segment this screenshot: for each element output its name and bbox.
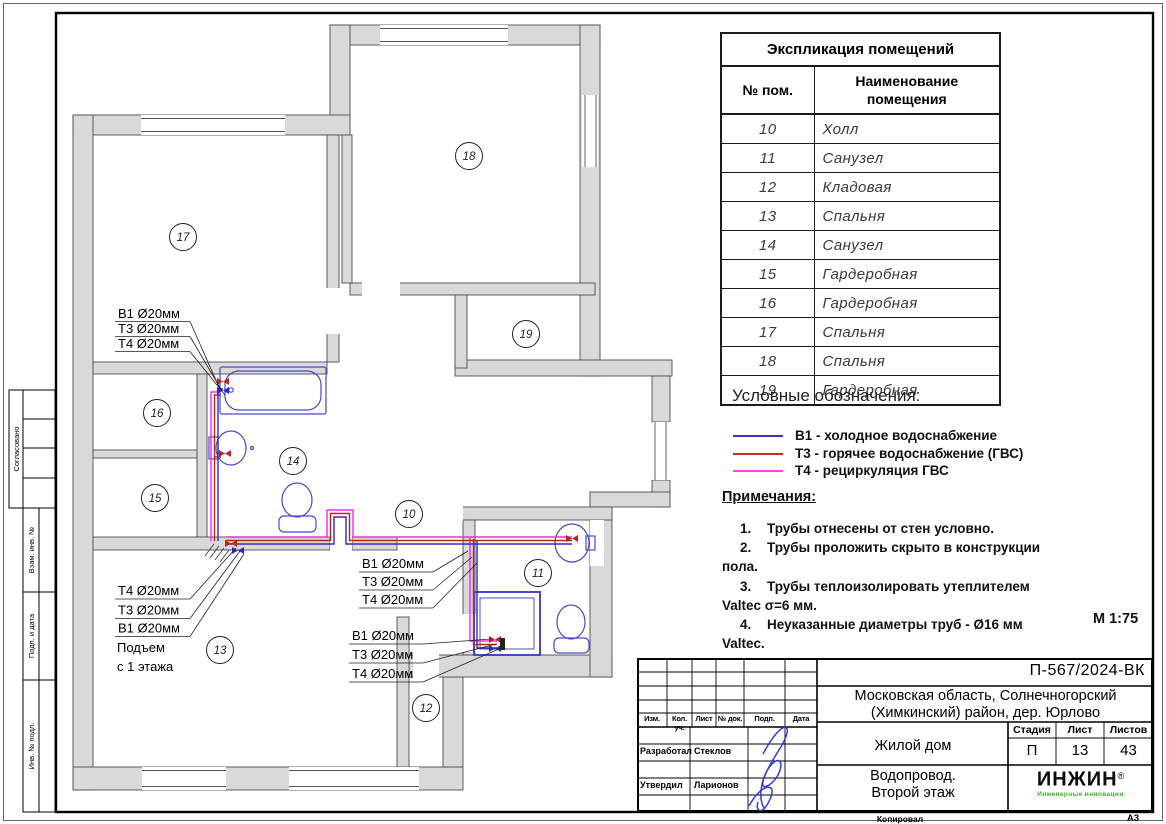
room-name-cell: Спальня (814, 347, 1000, 376)
pipe-label: В1 Ø20мм (118, 306, 180, 321)
note-number: 1. (740, 521, 767, 536)
room-number-cell: 16 (721, 289, 814, 318)
note-number: 4. (740, 617, 767, 632)
svg-text:18: 18 (463, 151, 476, 163)
svg-text:19: 19 (520, 329, 533, 341)
note-item: 4.Неуказанные диаметры труб - Ø16 мм (722, 617, 1052, 636)
svg-text:15: 15 (149, 493, 162, 505)
washbasin-room11 (555, 524, 595, 562)
room-circle: 19 (513, 321, 540, 348)
riser-note-line: Подъем (117, 640, 165, 655)
shower-room11 (474, 592, 540, 655)
svg-text:10: 10 (403, 509, 416, 521)
rooms-explication-table: Экспликация помещений № пом. Наименовани… (720, 32, 1001, 406)
room-circle: 16 (144, 400, 171, 427)
room-circle: 12 (413, 695, 440, 722)
table-row: 14Санузел (721, 231, 1000, 260)
table-row: 10Холл (721, 114, 1000, 144)
room-name-cell: Гардеробная (814, 289, 1000, 318)
legend-line-sample (733, 453, 783, 455)
room-number-cell: 15 (721, 260, 814, 289)
room-number-cell: 17 (721, 318, 814, 347)
table-row: 13Спальня (721, 202, 1000, 231)
format-label: А3 (1118, 813, 1148, 824)
floor-plan: В1 Ø20мм Т3 Ø20мм Т4 Ø20мм Т4 Ø20мм Т3 Ø… (57, 14, 717, 812)
logo-text: ИНЖИН (1037, 768, 1118, 790)
column-header-number: № пом. (721, 66, 814, 114)
legend-line-sample (733, 435, 783, 437)
column-header-name: Наименование помещения (814, 66, 1000, 114)
svg-text:14: 14 (287, 456, 300, 468)
room-number-cell: 10 (721, 114, 814, 144)
room-number-cell: 11 (721, 144, 814, 173)
pipe-label: Т4 Ø20мм (362, 592, 423, 607)
stage-value: П (1008, 742, 1056, 759)
room-name-cell: Кладовая (814, 173, 1000, 202)
address-line2: (Химкинский) район, дер. Юрлово (818, 705, 1153, 722)
note-number: 2. (740, 540, 767, 555)
notes-title: Примечания: (722, 489, 816, 505)
col-izm: Изм. (637, 714, 667, 723)
legend-label: Т4 - рециркуляция ГВС (795, 463, 949, 478)
pipe-label: Т3 Ø20мм (118, 321, 179, 336)
pipe-label: Т4 Ø20мм (352, 666, 413, 681)
sheet-title: Водопровод. Второй этаж (818, 768, 1008, 802)
sheets-value: 43 (1104, 742, 1153, 759)
col-podp: Подп. (744, 714, 785, 723)
note-text-continuation: пола. (722, 559, 1052, 578)
legend-label: В1 - холодное водоснабжение (795, 428, 997, 443)
object-name: Жилой дом (818, 738, 1008, 754)
room-name-cell: Санузел (814, 144, 1000, 173)
side-stamp-agreed-label: Согласовано (12, 426, 21, 471)
room-name-cell: Спальня (814, 318, 1000, 347)
side-stamp-inv-orig-label: Инв. № подл. (27, 723, 36, 770)
note-text: Трубы теплоизолировать утеплителем (767, 579, 1030, 594)
stage-label: Стадия (1008, 724, 1056, 736)
approved-label: Утвердил (640, 780, 683, 790)
pipe-label: Т3 Ø20мм (118, 603, 179, 618)
developed-label: Разработал (640, 746, 692, 756)
sheet-value: 13 (1056, 742, 1104, 759)
svg-text:11: 11 (532, 568, 544, 580)
note-item: 3.Трубы теплоизолировать утеплителем (722, 579, 1052, 598)
note-text-continuation: Valtec σ=6 мм. (722, 598, 1052, 617)
room-number-cell: 14 (721, 231, 814, 260)
note-text: Трубы отнесены от стен условно. (767, 521, 994, 536)
washbasin-room14 (209, 431, 254, 465)
table-row: 17Спальня (721, 318, 1000, 347)
note-item: 2.Трубы проложить скрыто в конструкции (722, 540, 1052, 559)
pipe-label: Т4 Ø20мм (118, 583, 179, 598)
room-name-cell: Спальня (814, 202, 1000, 231)
room-name-cell: Санузел (814, 231, 1000, 260)
room-circle: 17 (170, 224, 197, 251)
side-stamp-replace-inv-label: Взам. инв. № (27, 527, 36, 573)
note-text-continuation: Valtec. (722, 636, 1052, 655)
table-row: 18Спальня (721, 347, 1000, 376)
project-address: Московская область, Солнечногорский (Хим… (818, 688, 1153, 721)
svg-text:13: 13 (214, 645, 227, 657)
note-item: 1.Трубы отнесены от стен условно. (722, 521, 1052, 540)
legend-line-sample (733, 470, 783, 472)
pipe-label: Т3 Ø20мм (352, 647, 413, 662)
room-name-cell: Холл (814, 114, 1000, 144)
col-data: Дата (785, 714, 817, 723)
col-kol-uch: Кол. уч. (667, 714, 692, 732)
scale-note: М 1:75 (1093, 611, 1138, 627)
room-number-cell: 12 (721, 173, 814, 202)
notes-list: 1.Трубы отнесены от стен условно.2.Трубы… (722, 521, 1052, 655)
table-row: 12Кладовая (721, 173, 1000, 202)
room-circle: 18 (456, 143, 483, 170)
pipe-label: В1 Ø20мм (352, 628, 414, 643)
riser-note-line: с 1 этажа (117, 659, 174, 674)
side-stamp-sign-date-label: Подп. и дата (27, 613, 36, 658)
table-row: 11Санузел (721, 144, 1000, 173)
sheet-label: Лист (1056, 724, 1104, 736)
room-circle: 13 (207, 637, 234, 664)
developed-by: Стеклов (694, 746, 731, 756)
sheet-title-line2: Второй этаж (818, 785, 1008, 802)
legend-title: Условные обозначения: (732, 386, 920, 406)
room-name-cell: Гардеробная (814, 260, 1000, 289)
room-number-cell: 18 (721, 347, 814, 376)
note-number: 3. (740, 579, 767, 594)
toilet-room11 (554, 605, 589, 653)
svg-text:16: 16 (151, 408, 164, 420)
pipe-label: В1 Ø20мм (118, 621, 180, 636)
document-number: П-567/2024-ВК (840, 662, 1145, 680)
pipe-label: В1 Ø20мм (362, 556, 424, 571)
sheets-label: Листов (1104, 724, 1153, 736)
pipe-label: Т3 Ø20мм (362, 574, 423, 589)
logo-registered-mark: ® (1118, 771, 1125, 781)
signature (749, 727, 787, 810)
room-circle: 10 (396, 501, 423, 528)
room-circle: 15 (142, 485, 169, 512)
table-title: Экспликация помещений (721, 33, 1000, 66)
address-line1: Московская область, Солнечногорский (818, 688, 1153, 705)
approved-by: Ларионов (694, 780, 739, 790)
sheet-title-line1: Водопровод. (818, 768, 1008, 785)
note-text: Трубы проложить скрыто в конструкции (767, 540, 1040, 555)
copied-label: Копировал (840, 814, 960, 824)
room-circle: 11 (525, 560, 552, 587)
note-text: Неуказанные диаметры труб - Ø16 мм (767, 617, 1023, 632)
logo-tagline: Инженерные инновации (1008, 791, 1153, 798)
toilet-room14 (279, 483, 316, 532)
table-row: 16Гардеробная (721, 289, 1000, 318)
legend-label: Т3 - горячее водоснабжение (ГВС) (795, 446, 1023, 461)
pipe-label: Т4 Ø20мм (118, 336, 179, 351)
col-doc: № док. (716, 714, 744, 723)
svg-text:12: 12 (420, 703, 433, 715)
svg-text:17: 17 (177, 232, 190, 244)
table-row: 15Гардеробная (721, 260, 1000, 289)
room-circle: 14 (280, 448, 307, 475)
room-number-cell: 13 (721, 202, 814, 231)
drawing-sheet: Согласовано Взам. инв. № Подп. и дата Ин… (0, 0, 1166, 824)
company-logo: ИНЖИН® Инженерные инновации (1008, 766, 1153, 798)
col-list: Лист (692, 714, 716, 723)
